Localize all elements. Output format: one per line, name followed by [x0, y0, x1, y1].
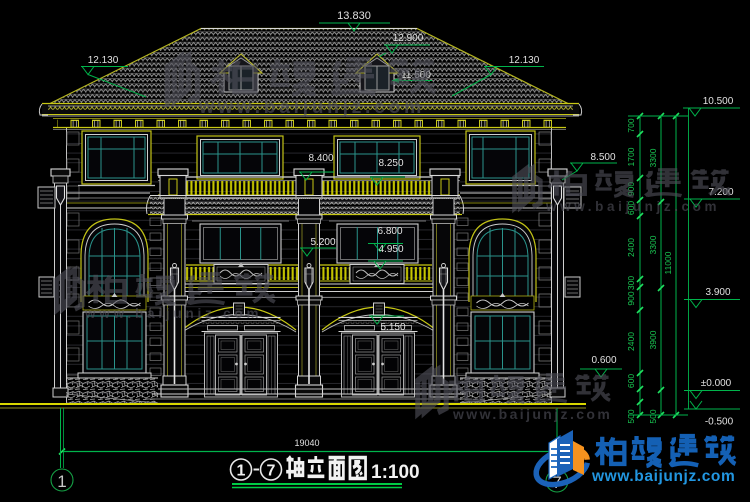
svg-text:900: 900: [626, 291, 636, 305]
svg-text:5.200: 5.200: [310, 237, 335, 248]
svg-text:3900: 3900: [648, 330, 658, 349]
svg-text:www.baijunjz.com: www.baijunjz.com: [452, 406, 612, 422]
svg-text:7: 7: [267, 463, 276, 480]
svg-text:www.baijunjz.com: www.baijunjz.com: [545, 199, 720, 214]
svg-text:600: 600: [626, 374, 636, 388]
svg-text:8.400: 8.400: [308, 153, 333, 164]
svg-text:2400: 2400: [626, 332, 636, 351]
svg-text:500: 500: [648, 409, 658, 423]
svg-text:11000: 11000: [663, 251, 673, 274]
svg-text:10.500: 10.500: [703, 96, 734, 107]
svg-text:0.600: 0.600: [591, 355, 616, 366]
svg-text:3300: 3300: [648, 235, 658, 254]
svg-text:700: 700: [626, 118, 636, 132]
svg-text:1700: 1700: [626, 147, 636, 166]
svg-text:12.130: 12.130: [88, 55, 119, 66]
svg-text:12.130: 12.130: [509, 55, 540, 66]
svg-text:6.800: 6.800: [377, 226, 402, 237]
svg-text:1:100: 1:100: [371, 462, 420, 483]
svg-text:300: 300: [626, 276, 636, 290]
svg-text:1: 1: [237, 463, 246, 480]
svg-text:12.900: 12.900: [393, 33, 424, 44]
svg-text:500: 500: [626, 409, 636, 423]
svg-text:5.150: 5.150: [380, 322, 405, 333]
svg-text:4.950: 4.950: [378, 244, 403, 255]
svg-text:13.830: 13.830: [337, 10, 371, 22]
svg-text:www.baijunjz.com: www.baijunjz.com: [591, 468, 735, 485]
svg-text:1: 1: [57, 472, 66, 491]
svg-text:±0.000: ±0.000: [701, 378, 732, 389]
svg-text:8.500: 8.500: [590, 152, 615, 163]
svg-text:-0.500: -0.500: [705, 417, 734, 428]
svg-text:2400: 2400: [626, 238, 636, 257]
svg-text:3.900: 3.900: [705, 287, 730, 298]
svg-text:8.250: 8.250: [378, 158, 403, 169]
svg-text:www.baijunjz.com: www.baijunjz.com: [84, 306, 262, 321]
svg-text:19040: 19040: [294, 438, 319, 448]
svg-text:3300: 3300: [648, 148, 658, 167]
svg-text:www.baijunjz.com: www.baijunjz.com: [198, 96, 425, 118]
